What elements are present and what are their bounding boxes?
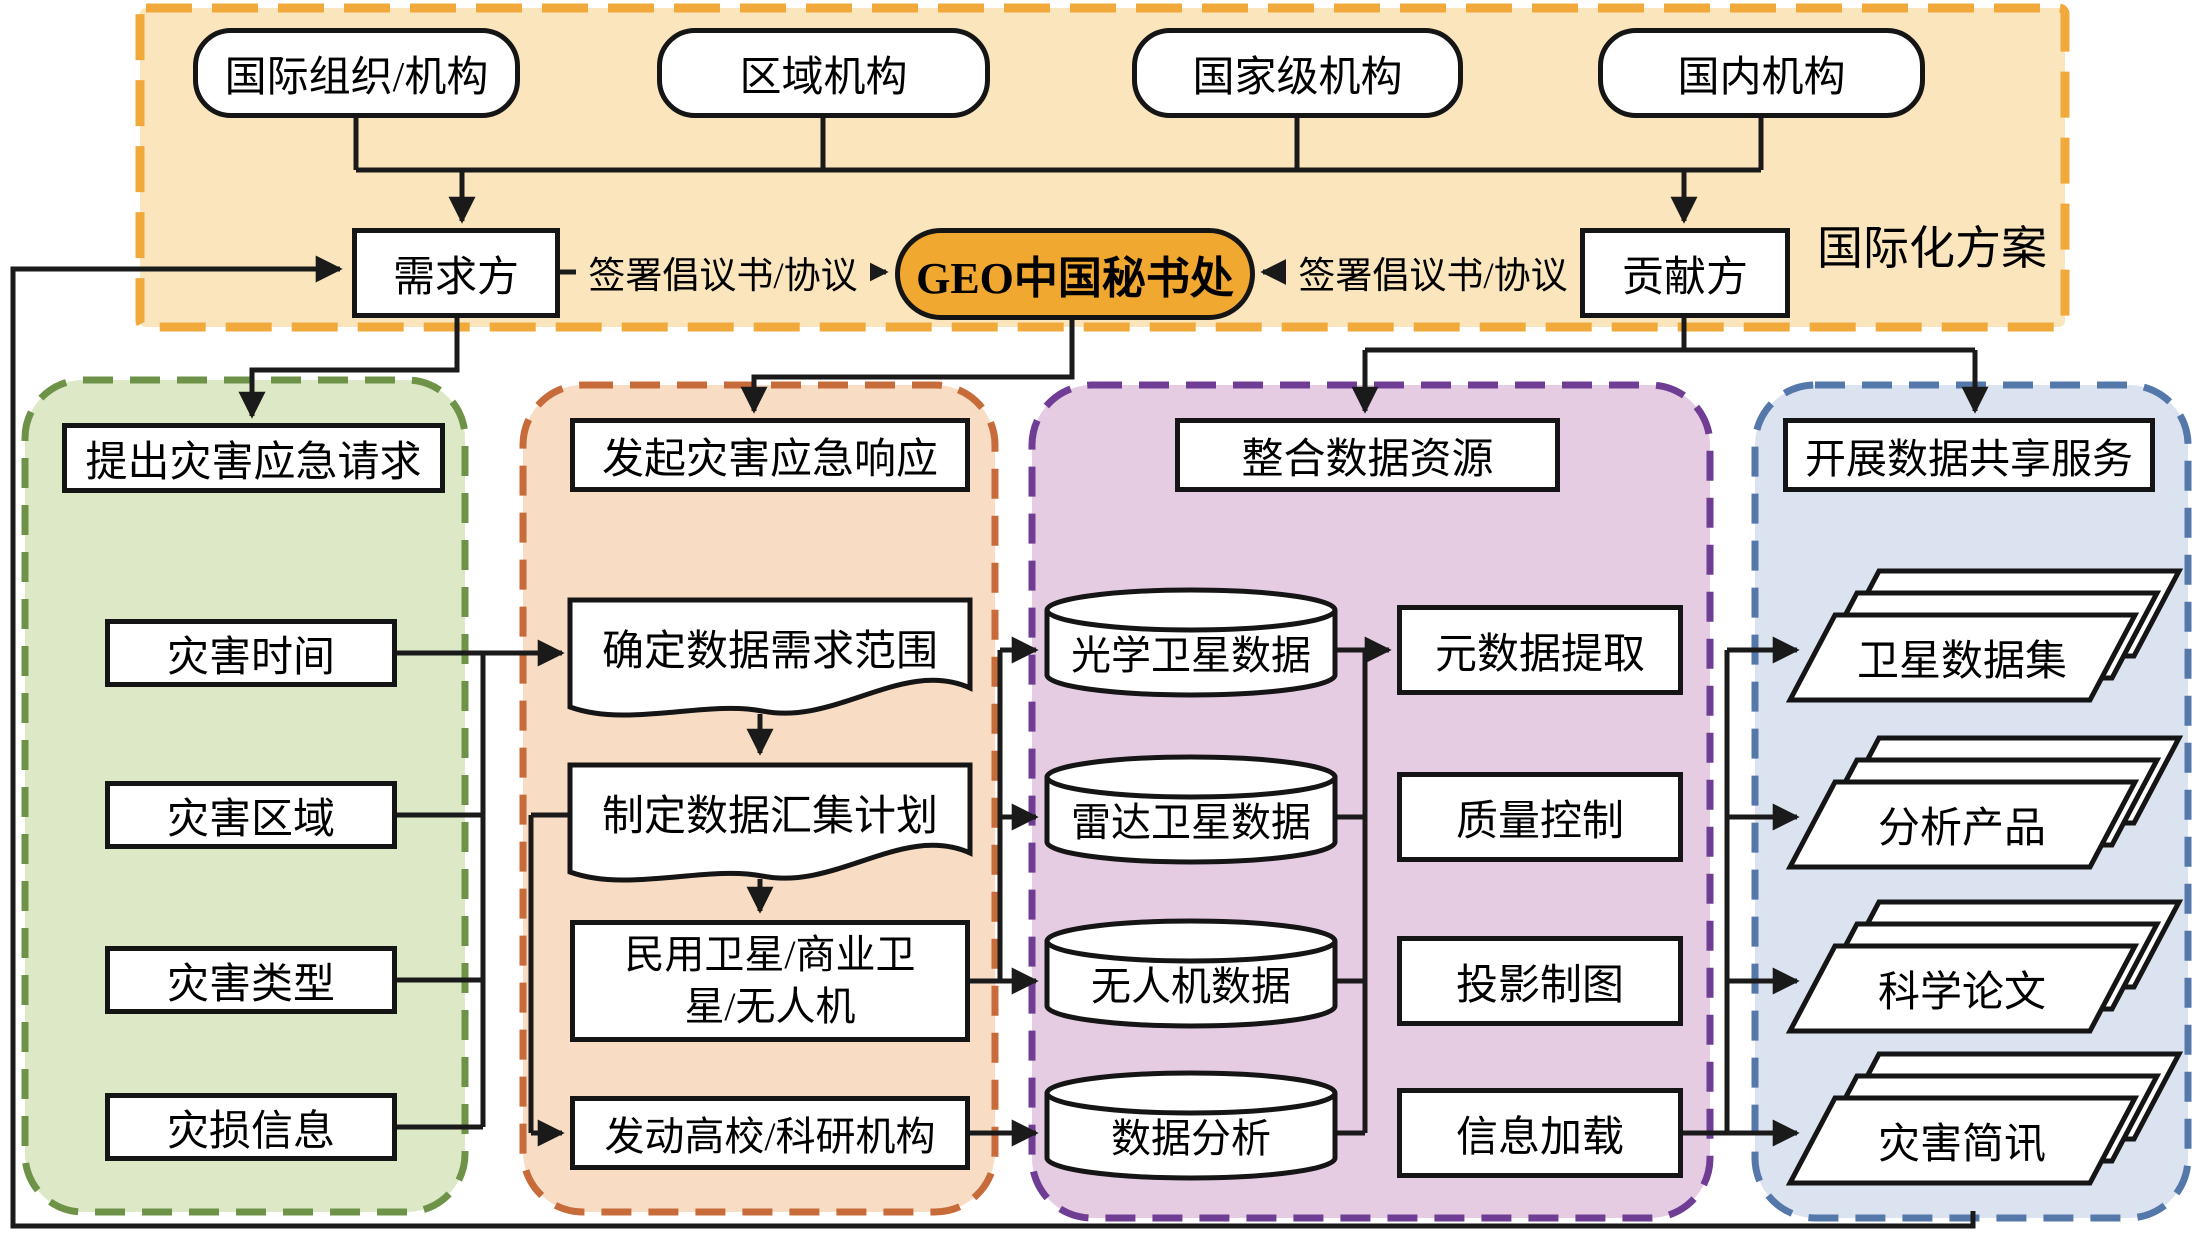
step-make-collection-plan-label: 制定数据汇集计划 bbox=[570, 767, 970, 857]
integration-header-label: 整合数据资源 bbox=[1241, 425, 1493, 486]
step-define-data-scope-label: 确定数据需求范围 bbox=[570, 602, 970, 692]
step-label: 制定数据汇集计划 bbox=[602, 782, 938, 843]
process-quality-control-box: 质量控制 bbox=[1397, 772, 1683, 862]
request-item-damage-info: 灾损信息 bbox=[105, 1093, 397, 1161]
datastore-label: 数据分析 bbox=[1111, 1106, 1271, 1164]
step-label: 确定数据需求范围 bbox=[602, 617, 938, 678]
org-label: 区域机构 bbox=[739, 43, 907, 104]
org-box-regional: 区域机构 bbox=[657, 28, 990, 118]
response-header-label: 发起灾害应急响应 bbox=[602, 425, 938, 486]
org-label: 国内机构 bbox=[1677, 43, 1845, 104]
datastore-radar-label: 雷达卫星数据 bbox=[1047, 789, 1335, 849]
datastore-label: 无人机数据 bbox=[1091, 954, 1291, 1012]
sign-agreement-text: 签署倡议书/协议 bbox=[588, 245, 857, 299]
request-item-label: 灾害区域 bbox=[167, 785, 335, 846]
request-item-disaster-type: 灾害类型 bbox=[105, 946, 397, 1014]
sign-agreement-text: 签署倡议书/协议 bbox=[1298, 245, 1567, 299]
process-label: 质量控制 bbox=[1456, 787, 1624, 848]
request-item-label: 灾害类型 bbox=[167, 950, 335, 1011]
demand-side-label: 需求方 bbox=[393, 243, 519, 304]
output-label: 分析产品 bbox=[1878, 794, 2046, 855]
output-scientific-papers-label: 科学论文 bbox=[1812, 949, 2112, 1027]
org-box-domestic: 国内机构 bbox=[1598, 28, 1925, 118]
datastore-uav-label: 无人机数据 bbox=[1047, 953, 1335, 1013]
output-disaster-briefs-label: 灾害简讯 bbox=[1812, 1101, 2112, 1179]
org-label: 国际组织/机构 bbox=[225, 43, 489, 104]
step-label: 发动高校/科研机构 bbox=[604, 1104, 935, 1162]
internationalization-text: 国际化方案 bbox=[1817, 212, 2047, 278]
sharing-header-box: 开展数据共享服务 bbox=[1783, 418, 2155, 492]
request-item-disaster-area: 灾害区域 bbox=[105, 781, 397, 849]
datastore-label: 光学卫星数据 bbox=[1071, 623, 1311, 681]
internationalization-label: 国际化方案 bbox=[1808, 218, 2056, 272]
output-analysis-products-label: 分析产品 bbox=[1812, 785, 2112, 863]
datastore-label: 雷达卫星数据 bbox=[1071, 790, 1311, 848]
geo-secretariat-label: GEO中国秘书处 bbox=[916, 242, 1234, 306]
integration-header-box: 整合数据资源 bbox=[1175, 418, 1560, 492]
datastore-optical-label: 光学卫星数据 bbox=[1047, 622, 1335, 682]
step-mobilize-universities-box: 发动高校/科研机构 bbox=[570, 1096, 970, 1170]
demand-side-box: 需求方 bbox=[352, 228, 560, 318]
contributor-label: 贡献方 bbox=[1622, 243, 1748, 304]
process-info-loading-box: 信息加载 bbox=[1397, 1088, 1683, 1178]
response-header-box: 发起灾害应急响应 bbox=[570, 418, 970, 492]
request-header-label: 提出灾害应急请求 bbox=[85, 428, 421, 489]
org-label: 国家级机构 bbox=[1192, 43, 1402, 104]
process-projection-mapping-box: 投影制图 bbox=[1397, 936, 1683, 1026]
output-label: 卫星数据集 bbox=[1857, 627, 2067, 688]
request-item-disaster-time: 灾害时间 bbox=[105, 619, 397, 687]
geo-secretariat-box: GEO中国秘书处 bbox=[895, 228, 1255, 320]
process-metadata-extraction-box: 元数据提取 bbox=[1397, 605, 1683, 695]
contributor-box: 贡献方 bbox=[1580, 228, 1790, 318]
sharing-header-label: 开展数据共享服务 bbox=[1805, 425, 2133, 485]
sign-agreement-label-right: 签署倡议书/协议 bbox=[1286, 250, 1580, 294]
process-label: 投影制图 bbox=[1456, 951, 1624, 1012]
process-label: 元数据提取 bbox=[1435, 620, 1645, 681]
step-civil-commercial-satellite-uav-box: 民用卫星/商业卫星/无人机 bbox=[570, 920, 970, 1042]
output-label: 科学论文 bbox=[1878, 958, 2046, 1019]
request-item-label: 灾损信息 bbox=[167, 1097, 335, 1158]
output-satellite-datasets-label: 卫星数据集 bbox=[1812, 618, 2112, 696]
sign-agreement-label-left: 签署倡议书/协议 bbox=[576, 250, 870, 294]
request-header-box: 提出灾害应急请求 bbox=[62, 423, 445, 493]
datastore-analysis-label: 数据分析 bbox=[1047, 1105, 1335, 1165]
request-item-label: 灾害时间 bbox=[167, 623, 335, 684]
org-box-international: 国际组织/机构 bbox=[193, 28, 520, 118]
output-label: 灾害简讯 bbox=[1878, 1110, 2046, 1171]
step-label: 民用卫星/商业卫星/无人机 bbox=[601, 929, 939, 1033]
org-box-national: 国家级机构 bbox=[1132, 28, 1463, 118]
diagram-canvas: 国际组织/机构 区域机构 国家级机构 国内机构 需求方 GEO中国秘书处 贡献方… bbox=[0, 0, 2206, 1238]
process-label: 信息加载 bbox=[1456, 1103, 1624, 1164]
